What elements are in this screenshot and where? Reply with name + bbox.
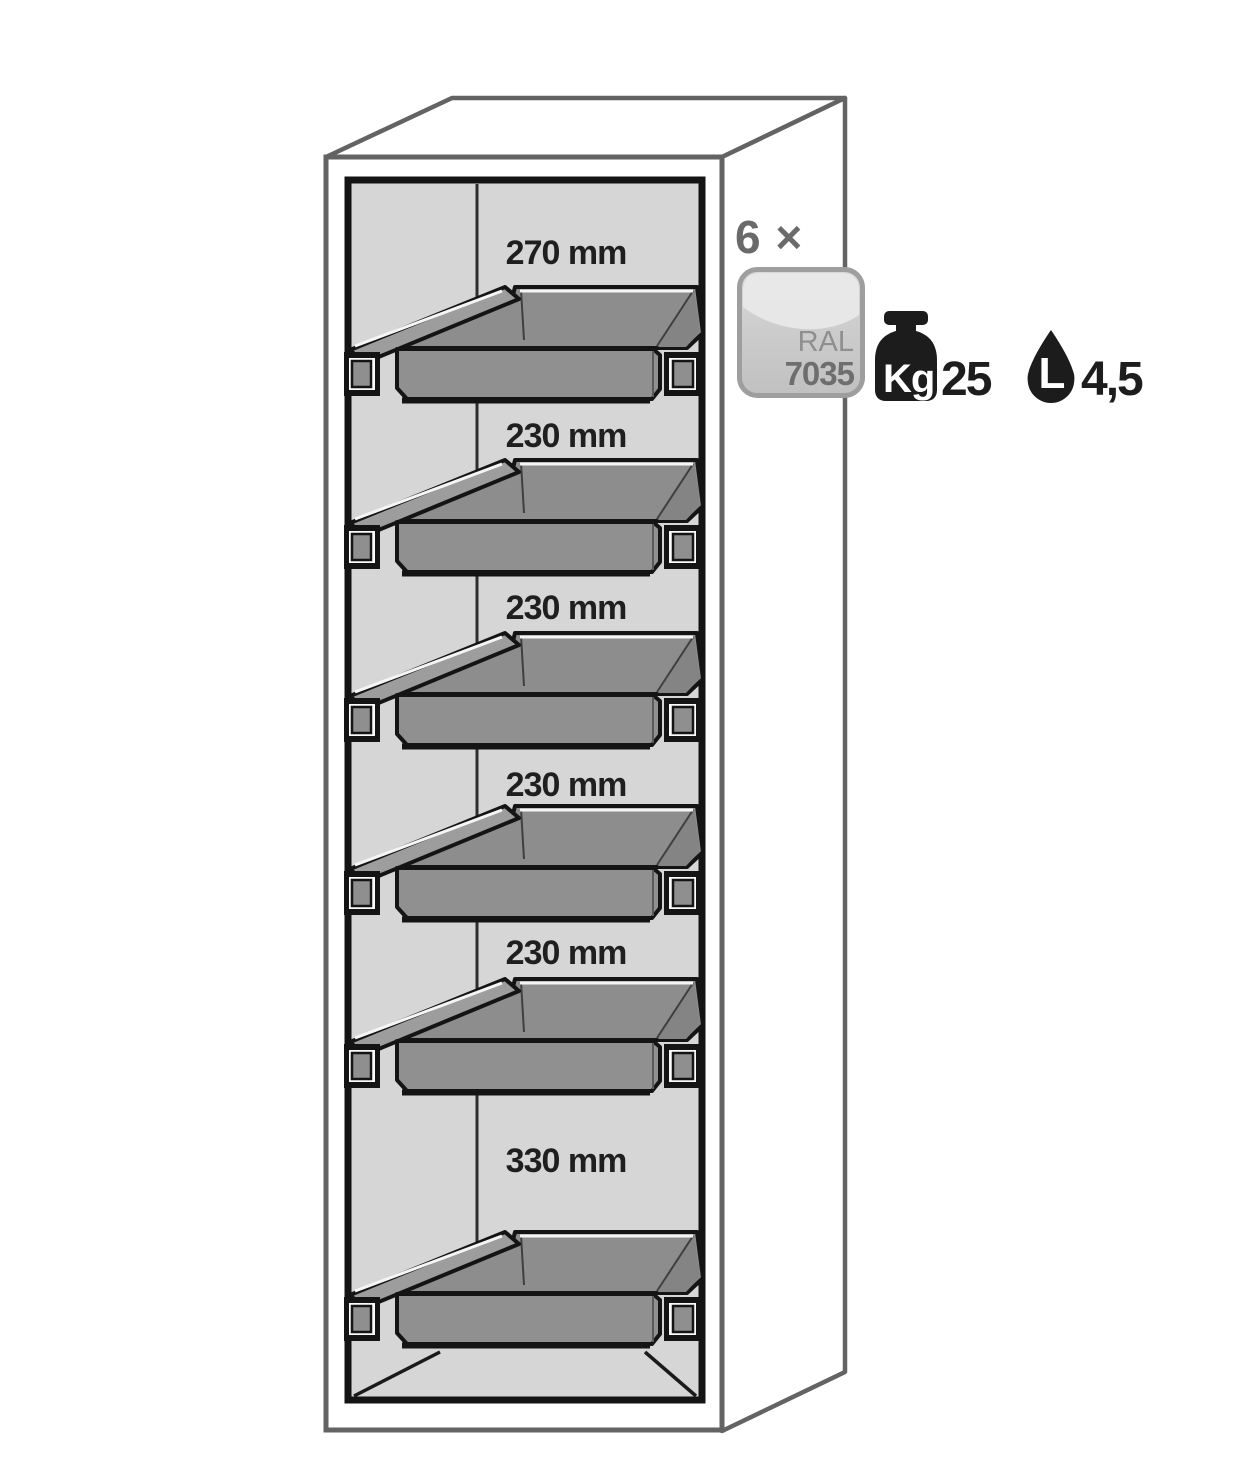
compartment-height-label: 230 mm [506, 768, 627, 802]
compartment-height-label: 270 mm [506, 236, 627, 270]
weight-value: 25 [941, 356, 990, 404]
ral-code-text: RAL 7035 [785, 328, 854, 391]
compartment-height-label: 230 mm [506, 591, 627, 625]
volume-value: 4,5 [1081, 356, 1142, 404]
cabinet-diagram [0, 0, 1240, 1468]
compartment-height-label: 230 mm [506, 419, 627, 453]
volume-unit-label: L [1030, 352, 1074, 396]
weight-unit-label: Kg [883, 359, 934, 399]
ral-prefix: RAL [785, 328, 854, 358]
ral-7035-color-badge: RAL 7035 [737, 267, 865, 398]
technical-diagram: 270 mm 230 mm 230 mm 230 mm 230 mm 330 m… [0, 0, 1240, 1468]
tray-count-label: 6 × [735, 214, 803, 260]
ral-number: 7035 [785, 357, 854, 391]
compartment-height-label: 330 mm [506, 1144, 627, 1178]
compartment-height-label: 230 mm [506, 936, 627, 970]
